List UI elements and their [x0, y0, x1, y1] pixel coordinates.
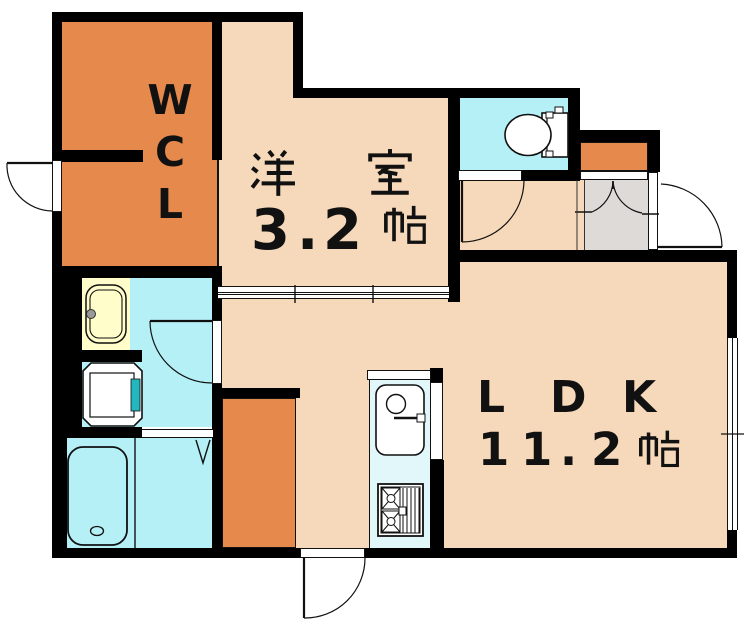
- plan-line-art: [0, 0, 755, 633]
- ldk-size-char: 1: [521, 427, 552, 472]
- western-room-size-unit-kanji: [383, 202, 429, 248]
- sliding-door-lines: [218, 285, 449, 303]
- side-door-swing: [7, 163, 52, 211]
- kitchen-sink: [376, 385, 425, 455]
- western-room-size: .: [297, 203, 318, 259]
- wcl-label-char: W: [140, 80, 200, 132]
- floor-plan: W C L 3 . 2 L D K 1 1 . 2: [0, 0, 755, 633]
- gas-stove: [378, 484, 423, 536]
- washbasin: [86, 285, 126, 343]
- ldk-label-char: L: [477, 376, 505, 420]
- wcl-label: W C L: [140, 80, 200, 236]
- ldk-label-char: D: [550, 376, 587, 420]
- western-room-size: 2: [323, 203, 362, 259]
- shoe-cabinet-door-arcs: [575, 181, 659, 214]
- ldk-size-char: 2: [591, 427, 622, 472]
- washroom-door-swing: [150, 321, 212, 383]
- wcl-label-char: L: [140, 184, 200, 236]
- western-room-size: 3: [251, 203, 290, 259]
- washing-machine-pan: [83, 363, 142, 426]
- ldk-size-unit-kanji: [638, 427, 682, 471]
- western-room-label-kanji-you: [246, 148, 296, 198]
- toilet-door-swing: [462, 181, 524, 242]
- ldk-door-swing: [304, 558, 365, 618]
- front-door-swing: [658, 184, 722, 247]
- ldk-size-char: 1: [478, 427, 509, 472]
- window-lines: [721, 338, 744, 530]
- ldk-label-char: K: [622, 376, 656, 420]
- western-room-label-kanji-shitsu: [365, 148, 415, 198]
- ldk-size-char: .: [560, 427, 577, 472]
- bathroom-folding-door: [196, 440, 210, 463]
- wcl-label-char: C: [140, 132, 200, 184]
- bathtub: [68, 447, 127, 545]
- toilet-fixture: [505, 107, 568, 157]
